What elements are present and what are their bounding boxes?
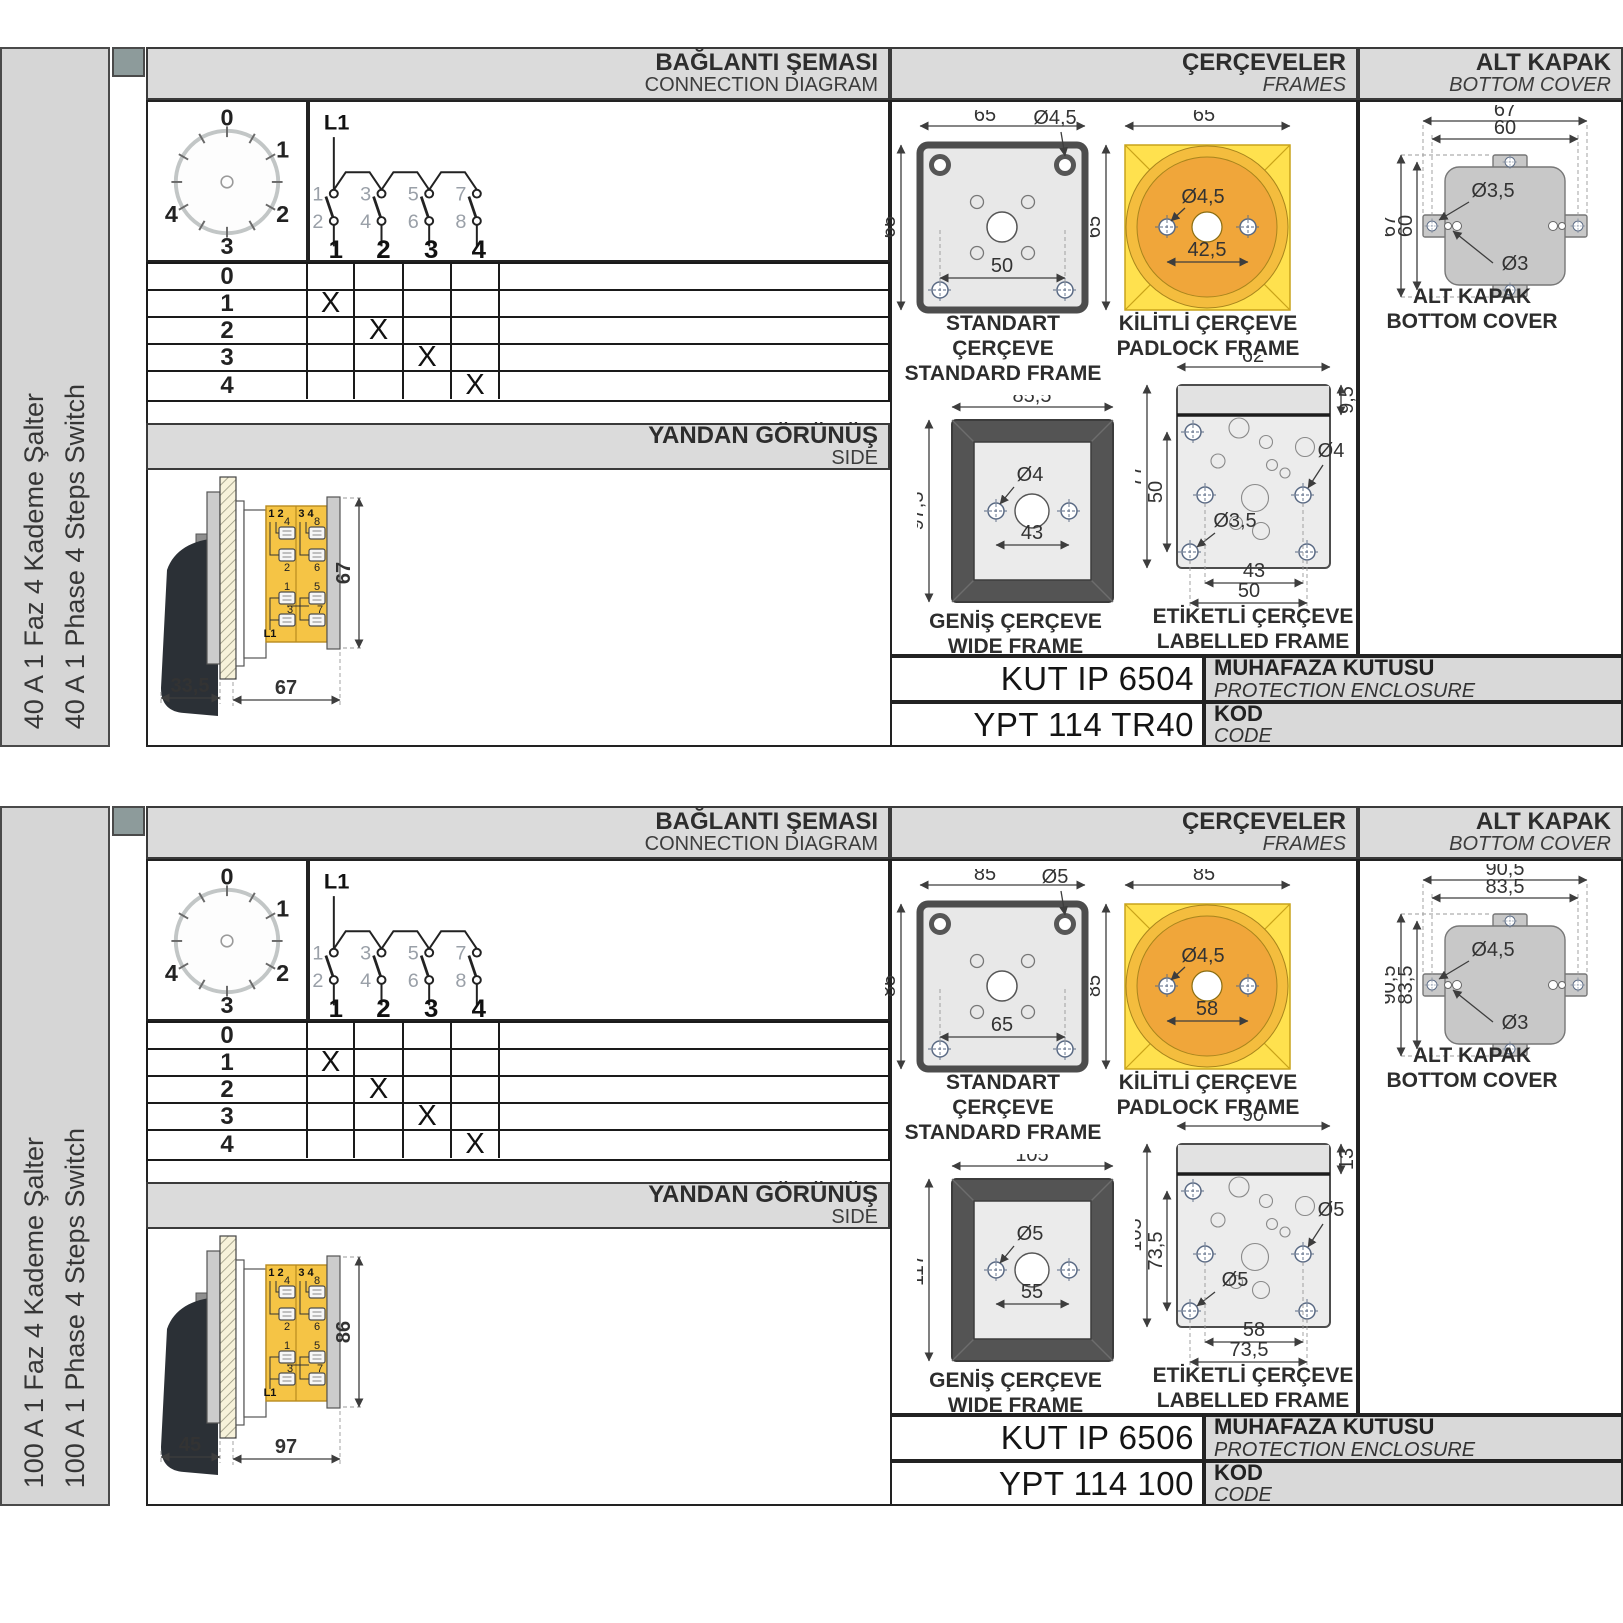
contact-8: 8 — [455, 970, 466, 992]
product-code: YPT 114 100 — [890, 1461, 1204, 1506]
pole-1: 1 — [329, 995, 343, 1019]
table-cell — [404, 264, 452, 291]
dim-cover-hole1: Ø3,5 — [1471, 180, 1514, 202]
table-cell — [452, 264, 500, 291]
terminal-label: 5 — [314, 581, 320, 593]
dim-pitch-1: 58 — [1243, 1319, 1265, 1341]
pole-3: 3 — [424, 995, 438, 1019]
dim-pitch-2: 50 — [1238, 580, 1260, 602]
dial-pos-1: 1 — [276, 137, 289, 163]
dim-label-strip: 9,5 — [1336, 386, 1358, 414]
table-row-label: 0 — [148, 1023, 308, 1050]
dim-frame-height: 85 — [885, 975, 900, 997]
table-filler — [500, 1050, 888, 1077]
header-side-tr: YANDAN GÖRÜNÜŞ — [648, 1182, 878, 1207]
dim-cover-hole2: Ø3 — [1502, 253, 1529, 275]
header-connection-diagram: BAĞLANTI ŞEMASI CONNECTION DIAGRAM — [146, 47, 890, 100]
schematic-panel: L1 1 3 5 7 2 4 — [308, 859, 890, 1021]
dim-inner-height: 73,5 — [1145, 1232, 1167, 1271]
switch-section-100a: 100 A 1 Faz 4 Kademe Şalter 100 A 1 Phas… — [0, 806, 1623, 1506]
caption-cover-tr: ALT KAPAK — [1372, 285, 1572, 310]
mounting-panel-hatch — [220, 477, 236, 679]
header-connection-tr: BAĞLANTI ŞEMASI — [655, 50, 878, 75]
header-cover-tr: ALT KAPAK — [1476, 809, 1611, 834]
dim-corner-hole: Ø4,5 — [1033, 110, 1076, 129]
table-cell — [308, 1131, 355, 1158]
terminal-phase-label: L1 — [264, 1387, 277, 1399]
caption-lab-en: LABELLED FRAME — [1140, 630, 1366, 655]
table-cell — [355, 1131, 404, 1158]
table-cell — [404, 291, 452, 318]
dial-pos-2: 2 — [276, 201, 289, 227]
dim-hole-pitch: 50 — [991, 255, 1013, 277]
contact-6: 6 — [408, 211, 419, 233]
header-frames-tr: ÇERÇEVELER — [1182, 809, 1346, 834]
header-bottom-cover: ALT KAPAK BOTTOM COVER — [1358, 47, 1623, 100]
table-cell — [355, 1023, 404, 1050]
dial-pos-4: 4 — [165, 960, 178, 986]
dim-pitch-1: 43 — [1243, 560, 1265, 582]
caption-labelled-frame: ETİKETLİ ÇERÇEVE LABELLED FRAME — [1140, 1364, 1366, 1414]
switch-section-40a: 40 A 1 Faz 4 Kademe Şalter 40 A 1 Phase … — [0, 47, 1623, 747]
header-cover-tr: ALT KAPAK — [1476, 50, 1611, 75]
terminal-label: 2 — [284, 562, 290, 574]
table-cell — [404, 372, 452, 399]
pole-2: 2 — [376, 995, 390, 1019]
dim-frame-width: 105 — [1015, 1154, 1048, 1166]
dim-side-hole: Ø4 — [1017, 464, 1044, 486]
terminal-phase-label: L1 — [264, 628, 277, 640]
table-filler — [500, 1131, 888, 1158]
dim-frame-width: 65 — [1193, 110, 1215, 126]
caption-std-tr: STANDART ÇERÇEVE — [898, 1071, 1108, 1121]
header-frames: ÇERÇEVELER FRAMES — [890, 806, 1358, 859]
dim-frame-width: 85 — [974, 869, 996, 885]
contact-7: 7 — [455, 184, 466, 206]
side-view-drawing: 1 2 3 4 4 8 2 6 1 5 3 7 L1 45 97 86 — [146, 1229, 890, 1506]
product-code-label: KOD CODE — [1204, 1461, 1623, 1506]
caption-labelled-frame: ETİKETLİ ÇERÇEVE LABELLED FRAME — [1140, 605, 1366, 655]
dim-cover-hole2: Ø3 — [1502, 1012, 1529, 1034]
table-cell — [404, 1050, 452, 1077]
dim-body-depth: 97 — [275, 1436, 297, 1458]
code-label-tr: KOD — [1214, 1461, 1621, 1484]
table-cell — [452, 345, 500, 372]
switching-table: 0 1 X 2 X 3 X 4 X — [146, 262, 890, 402]
table-cell: X — [355, 1077, 404, 1104]
section-tab-marker — [112, 47, 145, 77]
caption-wide-frame: GENİŞ ÇERÇEVE WIDE FRAME — [918, 610, 1113, 660]
side-view-drawing: 1 2 3 4 4 8 2 6 1 5 3 7 L1 33,5 67 67 — [146, 470, 890, 747]
pole-2: 2 — [376, 236, 390, 260]
table-row-label: 3 — [148, 345, 308, 372]
table-filler — [500, 1023, 888, 1050]
protection-enclosure-code: KUT IP 6504 — [890, 656, 1204, 702]
protection-enclosure-label: MUHAFAZA KUTUSU PROTECTION ENCLOSURE — [1204, 656, 1623, 702]
table-cell — [452, 291, 500, 318]
header-bottom-cover: ALT KAPAK BOTTOM COVER — [1358, 806, 1623, 859]
dial-pos-2: 2 — [276, 960, 289, 986]
header-connection-en: CONNECTION DIAGRAM — [645, 75, 878, 97]
product-code-label: KOD CODE — [1204, 702, 1623, 747]
dim-frame-height: 85 — [1090, 975, 1105, 997]
header-connection-diagram: BAĞLANTI ŞEMASI CONNECTION DIAGRAM — [146, 806, 890, 859]
dial-drawing: 0 1 2 3 4 — [148, 861, 306, 1019]
contact-5: 5 — [408, 943, 419, 965]
table-cell: X — [308, 1050, 355, 1077]
labelled-frame-drawing: 90 13 105 73,5 Ø5 Ø5 58 73,5 — [1135, 1114, 1365, 1399]
dim-body-height: 67 — [333, 562, 355, 584]
caption-pad-tr: KİLİTLİ ÇERÇEVE — [1103, 1071, 1313, 1096]
code-label-en: CODE — [1214, 1484, 1621, 1506]
dial-pos-0: 0 — [220, 104, 233, 130]
pair-label-right: 3 4 — [298, 508, 314, 520]
dim-hole-pitch: 65 — [991, 1014, 1013, 1036]
caption-wide-frame: GENİŞ ÇERÇEVE WIDE FRAME — [918, 1369, 1113, 1419]
header-side-en: SIDE — [831, 1207, 878, 1229]
dial-pos-3: 3 — [220, 992, 233, 1018]
contact-2: 2 — [312, 211, 323, 233]
switching-table: 0 1 X 2 X 3 X 4 X — [146, 1021, 890, 1161]
section-title-english: 40 A 1 Phase 4 Steps Switch — [60, 384, 91, 729]
table-filler — [500, 318, 888, 345]
table-cell — [404, 1131, 452, 1158]
table-cell — [355, 264, 404, 291]
caption-bottom-cover: ALT KAPAK BOTTOM COVER — [1372, 1044, 1572, 1094]
header-connection-en: CONNECTION DIAGRAM — [645, 834, 878, 856]
terminal-label: 3 — [287, 604, 293, 616]
dim-hole-pitch: 55 — [1021, 1281, 1043, 1303]
table-cell — [452, 1077, 500, 1104]
enclosure-label-tr: MUHAFAZA KUTUSU — [1214, 1415, 1621, 1438]
section-title-turkish: 40 A 1 Faz 4 Kademe Şalter — [19, 393, 50, 729]
dim-corner-hole: Ø5 — [1042, 869, 1069, 888]
dim-body-depth: 67 — [275, 677, 297, 699]
dim-frame-width: 62 — [1242, 355, 1264, 367]
standard-frame-drawing: 65 Ø4,5 65 50 — [885, 110, 1100, 345]
enclosure-label-en: PROTECTION ENCLOSURE — [1214, 680, 1621, 702]
dim-label-strip: 13 — [1336, 1148, 1358, 1170]
wide-frame-drawing: 85,5 97,5 Ø4 43 — [917, 395, 1127, 640]
contact-5: 5 — [408, 184, 419, 206]
dim-body-height: 86 — [333, 1321, 355, 1343]
header-frames-en: FRAMES — [1263, 834, 1346, 856]
caption-std-en: STANDARD FRAME — [898, 362, 1108, 387]
phase-label: L1 — [324, 109, 349, 134]
pole-4: 4 — [472, 236, 487, 260]
caption-std-tr: STANDART ÇERÇEVE — [898, 312, 1108, 362]
section-tab-marker — [112, 806, 145, 836]
dim-frame-height: 97,5 — [917, 492, 928, 531]
terminal-label: 3 — [287, 1363, 293, 1375]
table-filler — [500, 264, 888, 291]
header-frames: ÇERÇEVELER FRAMES — [890, 47, 1358, 100]
dim-frame-width: 90 — [1242, 1114, 1264, 1126]
terminal-label: 6 — [314, 1321, 320, 1333]
section-title-turkish: 100 A 1 Faz 4 Kademe Şalter — [19, 1137, 50, 1488]
contact-6: 6 — [408, 970, 419, 992]
table-cell: X — [404, 345, 452, 372]
header-cover-en: BOTTOM COVER — [1449, 834, 1611, 856]
terminal-label: 7 — [317, 1363, 323, 1375]
dim-side-hole: Ø5 — [1017, 1223, 1044, 1245]
contact-4: 4 — [360, 970, 371, 992]
dial-pos-0: 0 — [220, 863, 233, 889]
terminal-label: 7 — [317, 604, 323, 616]
standard-frame-drawing: 85 Ø5 85 65 — [885, 869, 1100, 1104]
terminal-label: 5 — [314, 1340, 320, 1352]
header-side-view: YANDAN GÖRÜNÜŞ SIDE — [146, 423, 890, 470]
dim-hole-bl: Ø5 — [1222, 1269, 1249, 1291]
header-connection-tr: BAĞLANTI ŞEMASI — [655, 809, 878, 834]
dim-side-hole: Ø4,5 — [1181, 945, 1224, 967]
dim-side-hole: Ø4,5 — [1181, 186, 1224, 208]
contact-1: 1 — [312, 184, 323, 206]
labelled-frame-drawing: 62 9,5 77 50 Ø3,5 Ø4 43 50 — [1135, 355, 1365, 640]
caption-cover-en: BOTTOM COVER — [1372, 1069, 1572, 1094]
dim-hole-pitch: 58 — [1196, 998, 1218, 1020]
contact-1: 1 — [312, 943, 323, 965]
dim-pitch-2: 73,5 — [1230, 1339, 1269, 1361]
dim-cover-w2: 60 — [1494, 117, 1516, 139]
dial-panel: 0 1 2 3 4 — [146, 859, 308, 1021]
dim-cover-hole1: Ø4,5 — [1471, 939, 1514, 961]
contact-3: 3 — [360, 184, 371, 206]
dim-inner-height: 50 — [1145, 481, 1167, 503]
terminal-label: 1 — [284, 581, 290, 593]
table-row-label: 2 — [148, 318, 308, 345]
contact-2: 2 — [312, 970, 323, 992]
terminal-label: 2 — [284, 1321, 290, 1333]
contact-7: 7 — [455, 943, 466, 965]
dim-hole-right: Ø5 — [1318, 1199, 1345, 1221]
enclosure-label-tr: MUHAFAZA KUTUSU — [1214, 656, 1621, 679]
table-cell: X — [452, 1131, 500, 1158]
table-cell: X — [355, 318, 404, 345]
table-cell — [308, 318, 355, 345]
table-row-label: 1 — [148, 291, 308, 318]
header-cover-en: BOTTOM COVER — [1449, 75, 1611, 97]
table-cell: X — [404, 1104, 452, 1131]
dim-hole-bl: Ø3,5 — [1213, 510, 1256, 532]
table-row-label: 0 — [148, 264, 308, 291]
header-side-tr: YANDAN GÖRÜNÜŞ — [648, 423, 878, 448]
caption-pad-tr: KİLİTLİ ÇERÇEVE — [1103, 312, 1313, 337]
pole-3: 3 — [424, 236, 438, 260]
dim-frame-width: 85 — [1193, 869, 1215, 885]
table-cell — [452, 1104, 500, 1131]
contact-4: 4 — [360, 211, 371, 233]
table-cell — [355, 345, 404, 372]
product-code: YPT 114 TR40 — [890, 702, 1204, 747]
section-title-english: 100 A 1 Phase 4 Steps Switch — [60, 1128, 91, 1488]
dim-hole-pitch: 42,5 — [1188, 239, 1227, 261]
padlock-frame-drawing: 85 85 Ø4,5 58 — [1090, 869, 1305, 1104]
table-row-label: 1 — [148, 1050, 308, 1077]
caption-lab-en: LABELLED FRAME — [1140, 1389, 1366, 1414]
code-label-tr: KOD — [1214, 702, 1621, 725]
schematic-panel: L1 1 3 5 7 2 4 — [308, 100, 890, 262]
dim-hole-right: Ø4 — [1318, 440, 1345, 462]
contact-8: 8 — [455, 211, 466, 233]
dim-frame-height: 65 — [885, 216, 900, 238]
caption-wide-tr: GENİŞ ÇERÇEVE — [918, 1369, 1113, 1394]
terminal-label: 4 — [284, 1275, 290, 1287]
table-cell — [452, 318, 500, 345]
dial-pos-1: 1 — [276, 896, 289, 922]
caption-lab-tr: ETİKETLİ ÇERÇEVE — [1140, 1364, 1366, 1389]
table-row-label: 3 — [148, 1104, 308, 1131]
dim-frame-height: 117 — [917, 1254, 928, 1286]
table-row-label: 4 — [148, 372, 308, 399]
code-label-en: CODE — [1214, 725, 1621, 747]
terminal-label: 8 — [314, 1275, 320, 1287]
caption-bottom-cover: ALT KAPAK BOTTOM COVER — [1372, 285, 1572, 335]
table-cell: X — [308, 291, 355, 318]
caption-standard-frame: STANDART ÇERÇEVE STANDARD FRAME — [898, 312, 1108, 386]
pair-label-left: 1 2 — [268, 1267, 283, 1279]
table-filler — [500, 1077, 888, 1104]
header-side-view: YANDAN GÖRÜNÜŞ SIDE — [146, 1182, 890, 1229]
padlock-frame-drawing: 65 65 Ø4,5 42,5 — [1090, 110, 1305, 345]
table-cell — [308, 1104, 355, 1131]
dim-frame-width: 85,5 — [1013, 395, 1052, 407]
table-cell — [308, 372, 355, 399]
pole-4: 4 — [472, 995, 487, 1019]
dim-cover-w2: 83,5 — [1486, 876, 1525, 898]
terminal-label: 4 — [284, 516, 290, 528]
protection-enclosure-code: KUT IP 6506 — [890, 1415, 1204, 1461]
section-sidebar: 40 A 1 Faz 4 Kademe Şalter 40 A 1 Phase … — [0, 47, 110, 747]
table-cell — [355, 1104, 404, 1131]
table-filler — [500, 1104, 888, 1131]
table-cell — [355, 372, 404, 399]
caption-wide-tr: GENİŞ ÇERÇEVE — [918, 610, 1113, 635]
caption-std-en: STANDARD FRAME — [898, 1121, 1108, 1146]
dim-cover-h2: 60 — [1395, 215, 1417, 237]
table-cell — [452, 1023, 500, 1050]
header-side-en: SIDE — [831, 448, 878, 470]
header-frames-tr: ÇERÇEVELER — [1182, 50, 1346, 75]
table-cell — [308, 1077, 355, 1104]
table-cell — [452, 1050, 500, 1077]
dim-cover-h2: 83,5 — [1395, 966, 1417, 1005]
dial-pos-3: 3 — [220, 233, 233, 259]
caption-lab-tr: ETİKETLİ ÇERÇEVE — [1140, 605, 1366, 630]
table-cell — [308, 345, 355, 372]
enclosure-label-en: PROTECTION ENCLOSURE — [1214, 1439, 1621, 1461]
table-cell: X — [452, 372, 500, 399]
pair-label-left: 1 2 — [268, 508, 283, 520]
section-sidebar: 100 A 1 Faz 4 Kademe Şalter 100 A 1 Phas… — [0, 806, 110, 1506]
mounting-panel-hatch — [220, 1236, 236, 1438]
protection-enclosure-label: MUHAFAZA KUTUSU PROTECTION ENCLOSURE — [1204, 1415, 1623, 1461]
table-filler — [500, 345, 888, 372]
schematic-drawing: L1 1 3 5 7 2 4 — [310, 102, 888, 260]
schematic-drawing: L1 1 3 5 7 2 4 — [310, 861, 888, 1019]
contact-3: 3 — [360, 943, 371, 965]
table-row-label: 2 — [148, 1077, 308, 1104]
pair-label-right: 3 4 — [298, 1267, 314, 1279]
table-row-label: 4 — [148, 1131, 308, 1158]
table-cell — [404, 1023, 452, 1050]
terminal-label: 6 — [314, 562, 320, 574]
dim-frame-height: 65 — [1090, 216, 1105, 238]
wide-frame-drawing: 105 117 Ø5 55 — [917, 1154, 1127, 1399]
phase-label: L1 — [324, 868, 349, 893]
dim-handle-depth: 33,5 — [171, 675, 210, 697]
dial-panel: 0 1 2 3 4 — [146, 100, 308, 262]
caption-cover-tr: ALT KAPAK — [1372, 1044, 1572, 1069]
terminal-label: 8 — [314, 516, 320, 528]
caption-cover-en: BOTTOM COVER — [1372, 310, 1572, 335]
dial-drawing: 0 1 2 3 4 — [148, 102, 306, 260]
dim-frame-width: 65 — [974, 110, 996, 126]
pole-1: 1 — [329, 236, 343, 260]
table-filler — [500, 291, 888, 318]
dial-pos-4: 4 — [165, 201, 178, 227]
dim-handle-depth: 45 — [179, 1434, 201, 1456]
dim-hole-pitch: 43 — [1021, 522, 1043, 544]
terminal-label: 1 — [284, 1340, 290, 1352]
table-filler — [500, 372, 888, 399]
caption-standard-frame: STANDART ÇERÇEVE STANDARD FRAME — [898, 1071, 1108, 1145]
header-frames-en: FRAMES — [1263, 75, 1346, 97]
